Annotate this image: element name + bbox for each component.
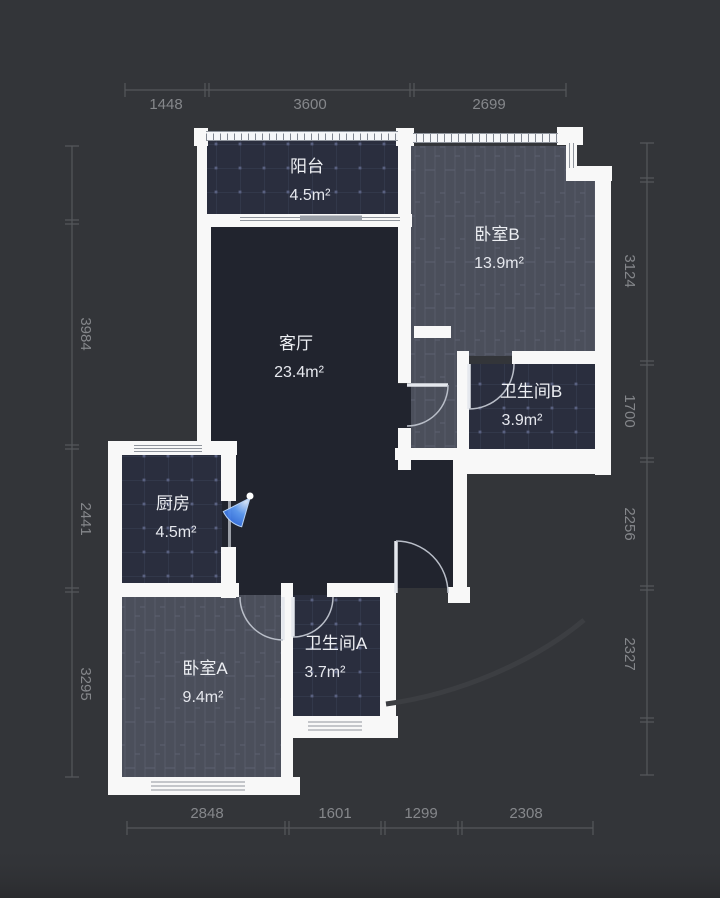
label-bedroom-b-area: 13.9m²	[474, 255, 524, 272]
label-kitchen-area: 4.5m²	[156, 524, 198, 541]
label-living-room-area: 23.4m²	[274, 364, 324, 381]
dim-label-bottom-0: 2848	[190, 805, 223, 822]
label-bathroom-a-area: 3.7m²	[305, 664, 347, 681]
room-bedroom-b-ext	[568, 180, 596, 356]
bedroom-b-side-window	[566, 142, 577, 169]
floorplan-svg: 阳台 4.5m² 卧室B 13.9m² 客厅 23.4m² 卫生间B 3.9m²…	[0, 0, 720, 898]
room-balcony	[206, 140, 398, 216]
dim-label-top-2: 2699	[472, 96, 505, 113]
dim-label-top-1: 3600	[293, 96, 326, 113]
wall-segment	[108, 583, 239, 597]
bedroom-a-threshold	[238, 583, 282, 597]
camera-dot	[247, 493, 254, 500]
label-balcony-name: 阳台	[290, 157, 324, 176]
label-balcony-area: 4.5m²	[290, 187, 332, 204]
door-slab-bedroom-b	[414, 326, 451, 338]
label-bathroom-b-area: 3.9m²	[502, 412, 544, 429]
label-living-room-name: 客厅	[279, 334, 313, 353]
wall-segment	[453, 449, 467, 602]
dim-label-right-0: 3124	[621, 254, 638, 287]
floorplan-canvas: 阳台 4.5m² 卧室B 13.9m² 客厅 23.4m² 卫生间B 3.9m²…	[0, 0, 720, 898]
balcony-sliding-panel	[300, 216, 362, 221]
wall-segment	[448, 587, 470, 603]
dim-label-left-1: 2441	[77, 502, 94, 535]
label-bathroom-a-name: 卫生间A	[305, 634, 368, 653]
nook-threshold	[396, 384, 411, 429]
wall-segment	[457, 351, 469, 451]
wall-segment	[512, 351, 611, 364]
dim-label-top-0: 1448	[149, 96, 182, 113]
label-bedroom-b-name: 卧室B	[474, 225, 519, 244]
dim-label-bottom-3: 2308	[509, 805, 542, 822]
balcony-window	[206, 131, 398, 141]
bathroom-a-threshold	[291, 583, 328, 597]
room-living-entry	[397, 458, 454, 588]
wall-segment	[398, 129, 411, 383]
bedroom-b-window	[413, 133, 558, 143]
room-bathroom-a	[293, 595, 380, 718]
wall-segment	[453, 449, 611, 474]
dim-label-left-2: 3295	[77, 667, 94, 700]
dim-label-left-0: 3984	[77, 317, 94, 350]
label-kitchen-name: 厨房	[156, 494, 190, 513]
label-bathroom-b-name: 卫生间B	[500, 382, 562, 401]
room-bathroom-b	[469, 364, 595, 451]
room-kitchen	[122, 455, 222, 585]
label-bedroom-a-area: 9.4m²	[183, 689, 225, 706]
room-bedroom-a	[122, 595, 282, 779]
hallway-nook	[409, 338, 459, 452]
dim-label-right-2: 2256	[621, 507, 638, 540]
wall-segment	[221, 441, 236, 501]
bottom-fade	[0, 845, 720, 898]
dim-label-bottom-1: 1601	[318, 805, 351, 822]
wall-segment	[197, 129, 207, 222]
wall-segment	[108, 583, 122, 795]
label-bedroom-a-name: 卧室A	[182, 659, 228, 678]
dim-label-right-3: 2327	[621, 637, 638, 670]
wall-segment	[595, 166, 611, 475]
dim-label-right-1: 1700	[621, 394, 638, 427]
room-bedroom-b	[411, 146, 568, 356]
wall-segment	[380, 583, 396, 738]
room-living-lower	[236, 448, 398, 585]
wall-segment	[108, 441, 122, 598]
wall-segment	[197, 214, 211, 448]
dim-label-bottom-2: 1299	[404, 805, 437, 822]
